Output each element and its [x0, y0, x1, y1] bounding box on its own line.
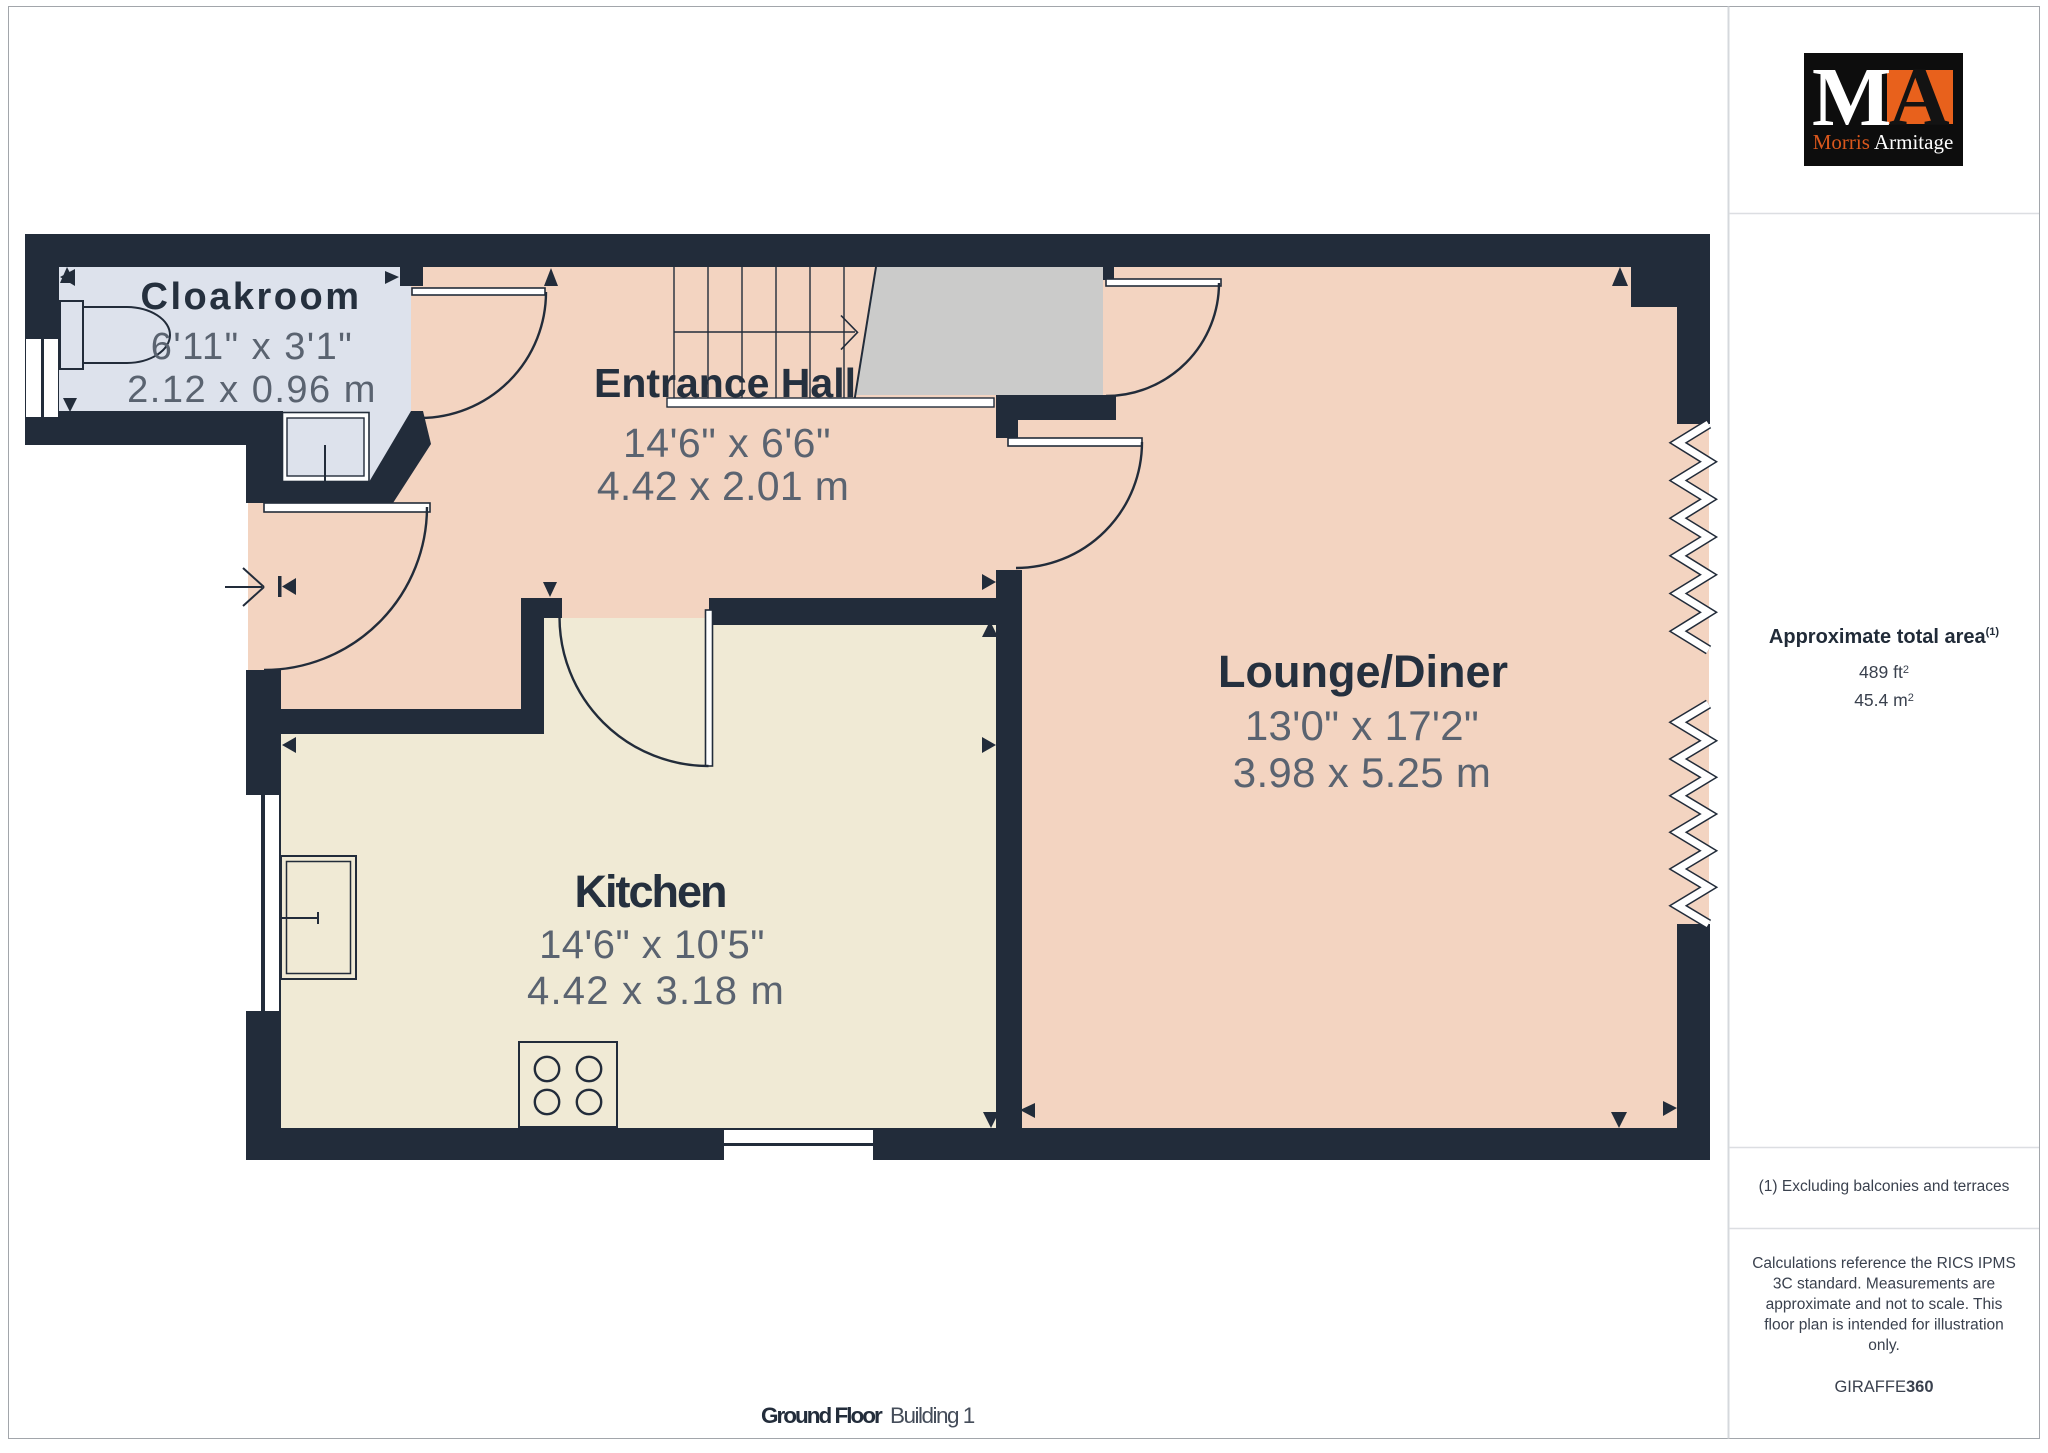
- svg-text:489 ft2: 489 ft2: [1859, 662, 1909, 682]
- svg-text:4.42 x 2.01 m: 4.42 x 2.01 m: [597, 463, 849, 509]
- svg-text:14'6" x 10'5": 14'6" x 10'5": [539, 923, 765, 967]
- svg-text:only.: only.: [1868, 1337, 1900, 1354]
- svg-text:Ground Floor: Ground Floor: [761, 1403, 883, 1428]
- svg-text:floor plan is intended for ill: floor plan is intended for illustration: [1764, 1317, 2004, 1334]
- svg-text:13'0" x 17'2": 13'0" x 17'2": [1245, 702, 1479, 749]
- svg-text:6'11" x 3'1": 6'11" x 3'1": [151, 326, 353, 368]
- svg-text:Approximate total area(1): Approximate total area(1): [1769, 626, 2000, 648]
- svg-text:Entrance Hall: Entrance Hall: [594, 360, 856, 406]
- svg-text:Morris Armitage: Morris Armitage: [1813, 130, 1954, 154]
- svg-text:3.98 x 5.25 m: 3.98 x 5.25 m: [1233, 749, 1491, 796]
- svg-text:(1) Excluding balconies and te: (1) Excluding balconies and terraces: [1759, 1178, 2010, 1195]
- svg-text:4.42 x 3.18 m: 4.42 x 3.18 m: [527, 969, 785, 1013]
- svg-text:Lounge/Diner: Lounge/Diner: [1218, 646, 1508, 697]
- svg-text:Cloakroom: Cloakroom: [141, 276, 362, 318]
- svg-text:Kitchen: Kitchen: [574, 866, 725, 917]
- svg-text:2.12 x 0.96 m: 2.12 x 0.96 m: [127, 369, 377, 411]
- svg-text:3C standard. Measurements are: 3C standard. Measurements are: [1773, 1276, 1995, 1293]
- svg-text:Building 1: Building 1: [890, 1403, 975, 1428]
- svg-text:GIRAFFE360: GIRAFFE360: [1834, 1378, 1933, 1396]
- svg-text:approximate and not to scale.: approximate and not to scale. This: [1766, 1296, 2003, 1313]
- svg-text:Calculations reference the RIC: Calculations reference the RICS IPMS: [1752, 1255, 2016, 1272]
- svg-text:45.4 m2: 45.4 m2: [1854, 690, 1914, 710]
- svg-text:14'6" x 6'6": 14'6" x 6'6": [623, 420, 831, 466]
